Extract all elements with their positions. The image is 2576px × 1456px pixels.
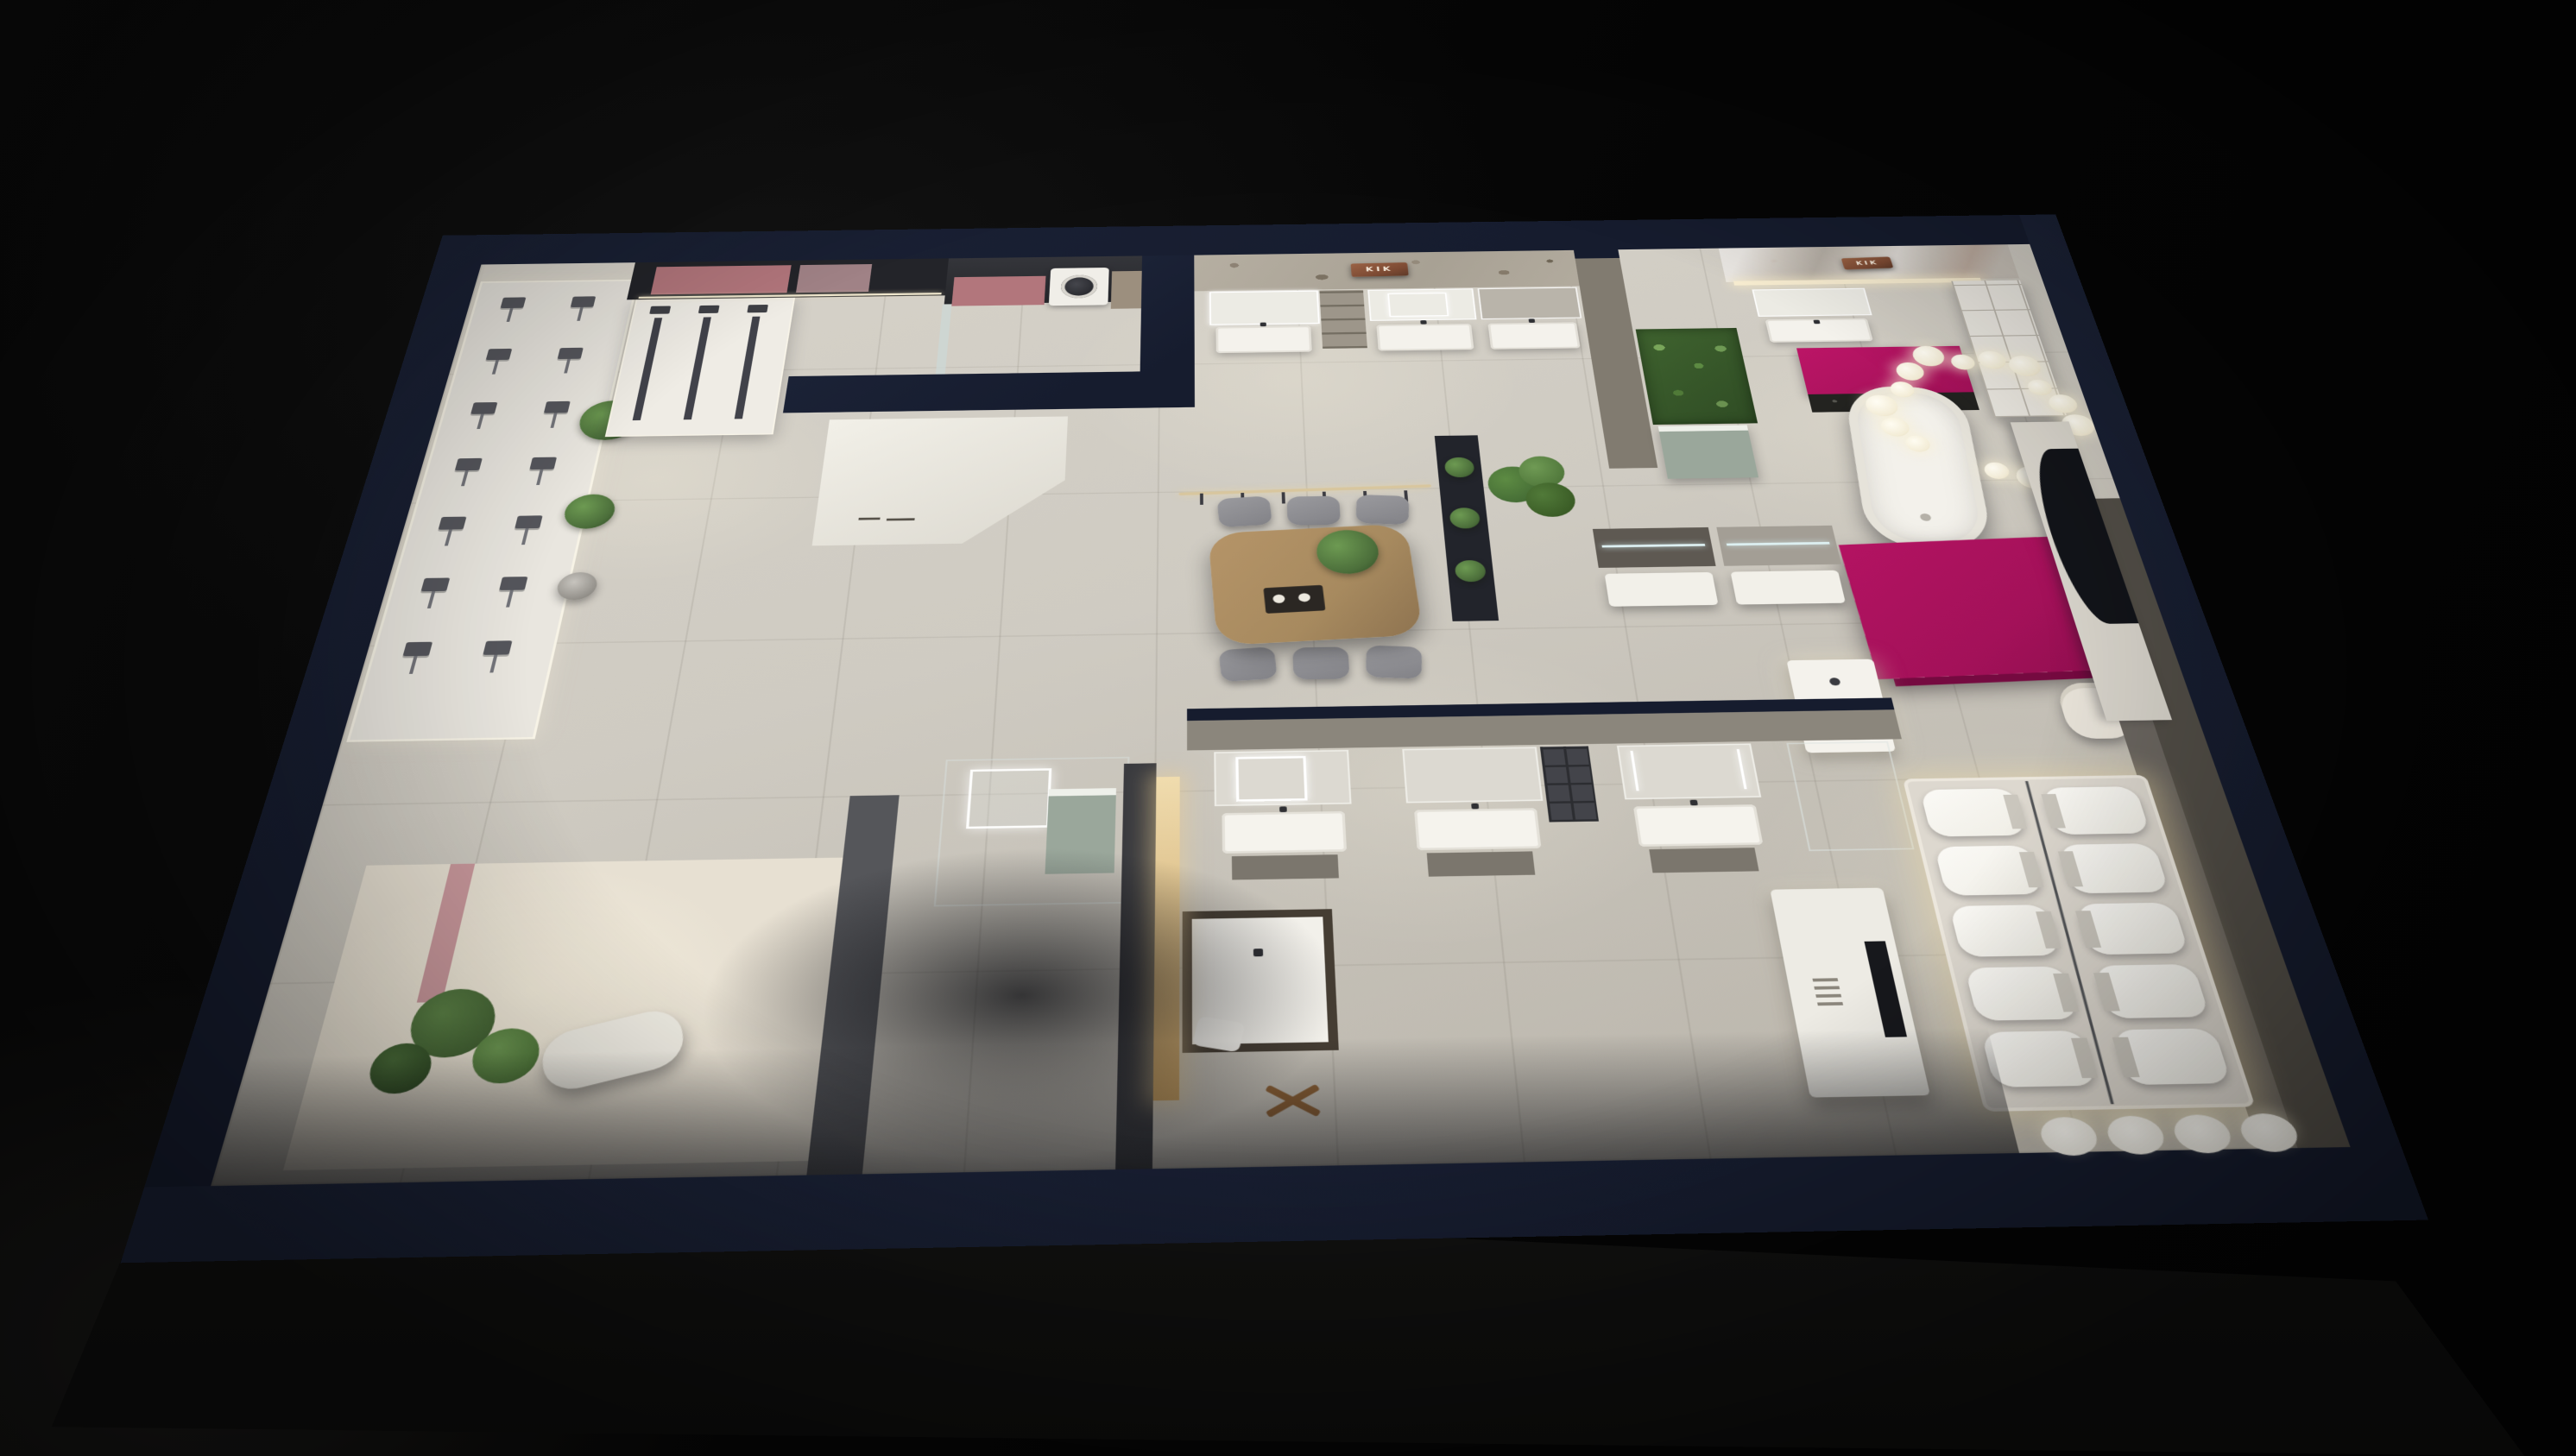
chandelier-bulb	[1976, 351, 2009, 369]
shower-head-station	[402, 642, 432, 657]
navy-partition-wall	[1140, 255, 1195, 408]
shower-head-station	[515, 515, 542, 528]
shower-head-station	[558, 348, 584, 359]
shower-column	[735, 317, 761, 419]
toilet-tank	[2093, 973, 2120, 1012]
shower-hose	[477, 414, 483, 429]
led-mirror	[1209, 291, 1320, 325]
toilet-tank	[2058, 851, 2083, 886]
vanity-base	[1427, 851, 1536, 876]
chandelier-bulb	[2006, 356, 2044, 376]
led-mirror	[1367, 288, 1476, 321]
mirror	[1402, 747, 1543, 803]
showroom-floorplan: KIK KIK	[121, 214, 2428, 1263]
meeting-chair	[1366, 645, 1422, 678]
vanity-unit	[1752, 288, 1879, 345]
shower-head	[747, 305, 768, 312]
toilet	[1965, 967, 2080, 1021]
cup	[1272, 594, 1285, 603]
wall-hung-basin	[2036, 1117, 2101, 1157]
illuminated-column	[1153, 777, 1180, 1100]
pink-wall-panel	[651, 265, 792, 294]
wall-hung-basin-row	[2036, 1107, 2330, 1181]
shower-hose	[577, 307, 583, 321]
faucet	[1689, 800, 1698, 806]
toilet	[1920, 788, 2027, 836]
toilet-tank	[2019, 852, 2044, 887]
led-mirror	[1214, 750, 1351, 806]
vanity-unit	[1716, 526, 1853, 617]
chandelier-bulb	[1982, 463, 2011, 480]
toilet-tank	[2003, 795, 2027, 829]
sink-basin	[1215, 325, 1311, 353]
vanity-base	[1649, 848, 1758, 873]
navy-partition-wall	[783, 371, 1195, 413]
shower-head-station	[529, 457, 557, 470]
toilet-tank	[2036, 911, 2061, 949]
pink-cabinet-front	[951, 276, 1045, 306]
chandelier-bulb	[1878, 418, 1911, 437]
shower-head-station	[439, 517, 467, 530]
shower-head-station	[455, 458, 483, 470]
toilet	[1980, 1031, 2098, 1087]
toilet	[2093, 964, 2210, 1018]
led-mirror	[1617, 743, 1761, 799]
shelf-plant	[1455, 560, 1487, 582]
cup	[1297, 593, 1310, 602]
sink-basin	[1376, 324, 1474, 351]
chandelier-bulb	[1863, 394, 1900, 416]
mirror	[1752, 288, 1872, 317]
toilet	[1949, 904, 2061, 957]
shower-head-station	[421, 577, 451, 591]
kik-brand-sign: KIK	[1841, 256, 1894, 269]
meeting-chairs-row	[1213, 643, 1424, 682]
faucet	[1529, 318, 1536, 323]
meeting-chair	[1216, 495, 1272, 527]
toilet	[2058, 843, 2169, 893]
vanity-unit	[1617, 743, 1777, 879]
sink-basin	[1633, 804, 1763, 847]
toilet	[1935, 845, 2044, 895]
serving-tray	[1263, 585, 1325, 614]
vanity-unit	[1593, 527, 1726, 619]
meeting-chair	[1355, 495, 1409, 525]
sink-basin	[1487, 322, 1580, 349]
faucet	[1813, 320, 1820, 325]
meeting-chair	[1218, 646, 1278, 682]
mirror-back-panel	[1716, 526, 1841, 566]
washing-machine-drum	[1060, 274, 1097, 298]
wall-hung-basin	[2236, 1113, 2303, 1153]
toilet	[2112, 1028, 2232, 1085]
mirror-cabinet	[1477, 287, 1582, 320]
toilet-tank	[2041, 794, 2066, 829]
shower-head	[698, 306, 720, 313]
vanity-unit	[1367, 288, 1481, 354]
shower-head-station	[499, 577, 527, 590]
shower-head-station	[470, 402, 497, 414]
faucet	[1279, 806, 1287, 812]
wall-hung-basin	[2103, 1115, 2169, 1155]
shelf-plant	[1449, 507, 1481, 529]
led-mirror	[966, 768, 1051, 829]
shower-head	[649, 306, 671, 313]
shower-column-grid	[605, 297, 796, 438]
shower-hose	[492, 360, 499, 375]
meeting-table	[1208, 524, 1424, 646]
shower-hose	[536, 470, 543, 485]
chandelier-bulb	[1888, 381, 1916, 397]
shower-head-station	[571, 296, 596, 307]
meeting-chairs-row	[1211, 495, 1410, 527]
wall-hung-basin	[2169, 1114, 2236, 1154]
sink-basin	[1222, 811, 1347, 854]
sage-green-vanity	[1045, 788, 1116, 874]
shower-head-station	[483, 640, 512, 655]
shower-hose	[461, 470, 469, 486]
faucet	[1420, 320, 1427, 325]
desk-brand-mark	[887, 518, 915, 520]
chandelier-bulb	[2046, 394, 2080, 413]
vanity-unit	[1209, 291, 1318, 356]
mauve-wall-panel	[796, 264, 872, 293]
shower-hose	[564, 359, 571, 374]
shower-column-display	[605, 297, 796, 438]
shower-hose	[445, 529, 452, 545]
shower-hose	[506, 590, 514, 608]
chandelier-bulb	[2026, 380, 2055, 395]
vanity-unit	[1477, 287, 1587, 353]
shower-hose	[409, 656, 418, 674]
palm-foliage	[1524, 482, 1577, 517]
open-shelf-cube	[1540, 746, 1599, 822]
meeting-chair	[1286, 496, 1341, 526]
toilet-tank	[2112, 1037, 2140, 1078]
faucet	[1253, 949, 1263, 956]
chandelier-bulb	[1893, 362, 1925, 381]
pendant-hook	[1200, 494, 1203, 505]
vanity-unit	[1402, 747, 1552, 883]
vertical-garden-wall	[1636, 328, 1758, 425]
shower-column	[684, 317, 711, 419]
toilet-tank	[2053, 974, 2079, 1012]
control-panel	[1811, 974, 1843, 1006]
shower-head-station	[486, 349, 513, 360]
shower-hose	[489, 655, 497, 673]
meeting-chair	[1292, 646, 1349, 679]
shower-head-station	[544, 401, 571, 413]
palm-plant	[1485, 456, 1582, 519]
table-plant	[1314, 528, 1381, 575]
shower-column	[633, 318, 663, 420]
chandelier-bulb	[1904, 435, 1932, 451]
sink-basin	[1605, 572, 1719, 607]
showroom-render: KIK KIK	[0, 0, 2576, 1456]
desk-brand-mark	[858, 518, 880, 520]
mirror-back-panel	[1593, 527, 1716, 568]
toilet	[2041, 786, 2150, 835]
shelf-plant	[1444, 457, 1475, 478]
faucet	[1828, 678, 1840, 685]
shower-hose	[427, 591, 435, 608]
open-shelf-unit	[1319, 290, 1367, 349]
chandelier-bulb	[1949, 355, 1977, 370]
bathtub-drain	[1920, 514, 1932, 521]
faucet	[1260, 323, 1266, 327]
sink-basin	[1414, 808, 1541, 850]
shower-hose	[521, 528, 529, 545]
vanity-unit	[1214, 750, 1356, 886]
toilet	[2075, 903, 2189, 955]
sink-basin	[1731, 570, 1846, 605]
washing-machine	[1049, 268, 1109, 306]
sage-green-vanity	[1658, 425, 1758, 478]
faucet	[1471, 804, 1479, 810]
toilet-tank	[2071, 1037, 2098, 1078]
wooden-stool	[1257, 1070, 1329, 1131]
plant-foliage	[364, 1043, 437, 1094]
shower-head-station	[501, 297, 527, 308]
vanity-base	[1232, 854, 1339, 879]
shower-hose	[551, 413, 558, 427]
kik-brand-sign: KIK	[1350, 262, 1408, 277]
shower-hose	[507, 308, 514, 322]
toilet-tank	[2075, 911, 2101, 948]
